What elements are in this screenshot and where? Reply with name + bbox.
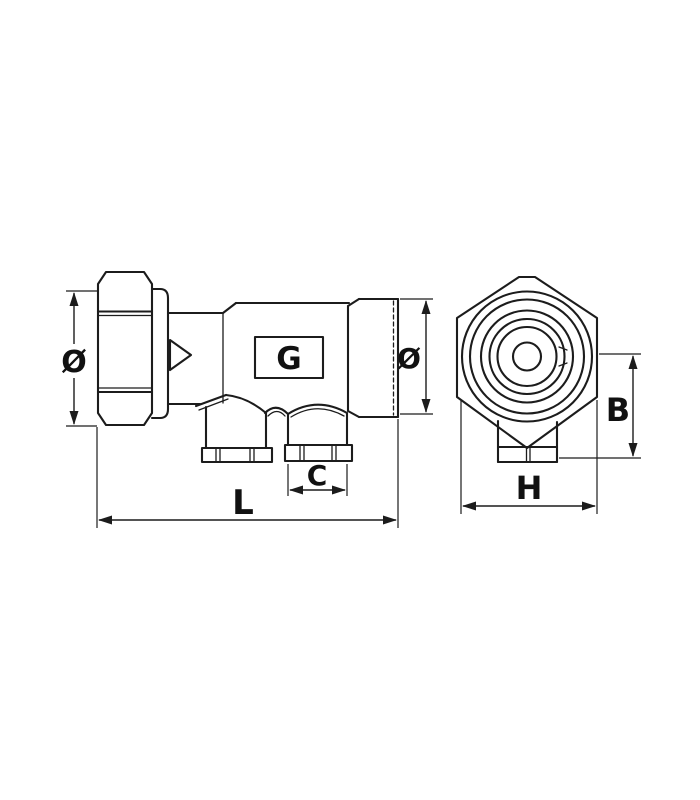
outlet-port-front	[498, 421, 557, 462]
label-overall-length: L	[232, 483, 254, 523]
label-outlet-size: C	[307, 459, 328, 492]
bore-circle	[513, 343, 541, 371]
union-nut	[98, 272, 152, 425]
concentric-circles	[462, 292, 592, 422]
nut-collar	[152, 289, 168, 418]
end-view: B H	[457, 277, 641, 514]
dim-pipe-diameter: Ø	[397, 299, 433, 414]
label-body-width: H	[516, 469, 543, 507]
valve-body	[196, 303, 349, 417]
neck	[168, 313, 222, 404]
label-body-height: B	[606, 391, 630, 429]
brand-plate: G	[255, 337, 323, 378]
dim-outlet-size: C	[288, 459, 347, 496]
label-pipe-diameter: Ø	[397, 342, 421, 375]
dim-overall-length: L	[97, 419, 398, 528]
pipe-end	[348, 299, 398, 417]
technical-drawing-canvas: G	[0, 0, 700, 800]
dim-body-width: H	[461, 400, 597, 514]
brand-letter: G	[276, 341, 301, 377]
valve-drawing: G	[0, 0, 700, 800]
flow-arrow-icon	[170, 340, 191, 370]
label-nut-diameter: Ø	[61, 345, 87, 380]
outlet-port-left	[202, 407, 272, 462]
dim-nut-diameter: Ø	[61, 291, 97, 426]
side-view: G	[61, 272, 433, 528]
outlet-port-right	[285, 413, 352, 461]
